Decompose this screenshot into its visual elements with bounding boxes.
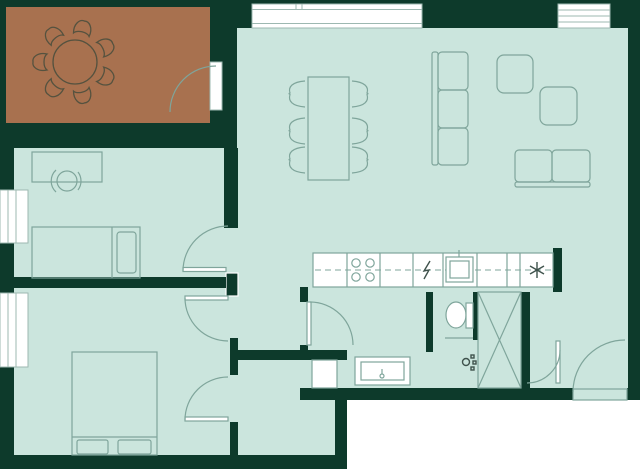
wall-bottom-left [0,455,347,469]
wall-bath-entry [521,292,530,388]
window-left-bedroom-1 [0,190,28,243]
floor-plan-canvas [0,0,640,472]
wall-counter-cap [553,248,562,292]
wall-closet-north [238,350,347,360]
wall-right [628,0,640,400]
floor-living [222,28,628,400]
wall-terrace-south [6,123,237,148]
entrance-threshold [573,389,627,400]
terrace-parapet-top [0,0,210,7]
wall-terrace-door-sill [210,110,222,123]
washing-machine [312,360,337,388]
floor-plan-drawing [0,0,640,472]
wall-bath-west-a [300,287,308,302]
kitchen-counter [313,250,553,287]
wall-terrace-east-lower [222,62,237,123]
pillow [77,440,108,454]
wall-bottom-right-b [627,388,640,400]
wall-bedroom-divider [14,277,226,288]
terrace-parapet-left [0,0,6,123]
wall-hall-west-b [230,422,238,455]
window-top-right [558,4,610,28]
wall-hall-west-a [230,338,238,375]
pillow [117,232,136,273]
pillow [118,440,151,454]
terrace-floor [6,7,210,123]
floor-bedrooms [14,123,237,455]
wall-terrace-east-upper [210,28,237,62]
window-left-bedroom-2 [0,293,28,367]
toilet [446,302,473,328]
window-top-large [252,4,422,28]
vanity-basin [355,357,410,385]
wall-bedroom1-east [224,148,238,228]
shaft-x-box [478,292,521,388]
wall-bath-partition [426,292,433,352]
wall-jamb-post [226,273,238,296]
